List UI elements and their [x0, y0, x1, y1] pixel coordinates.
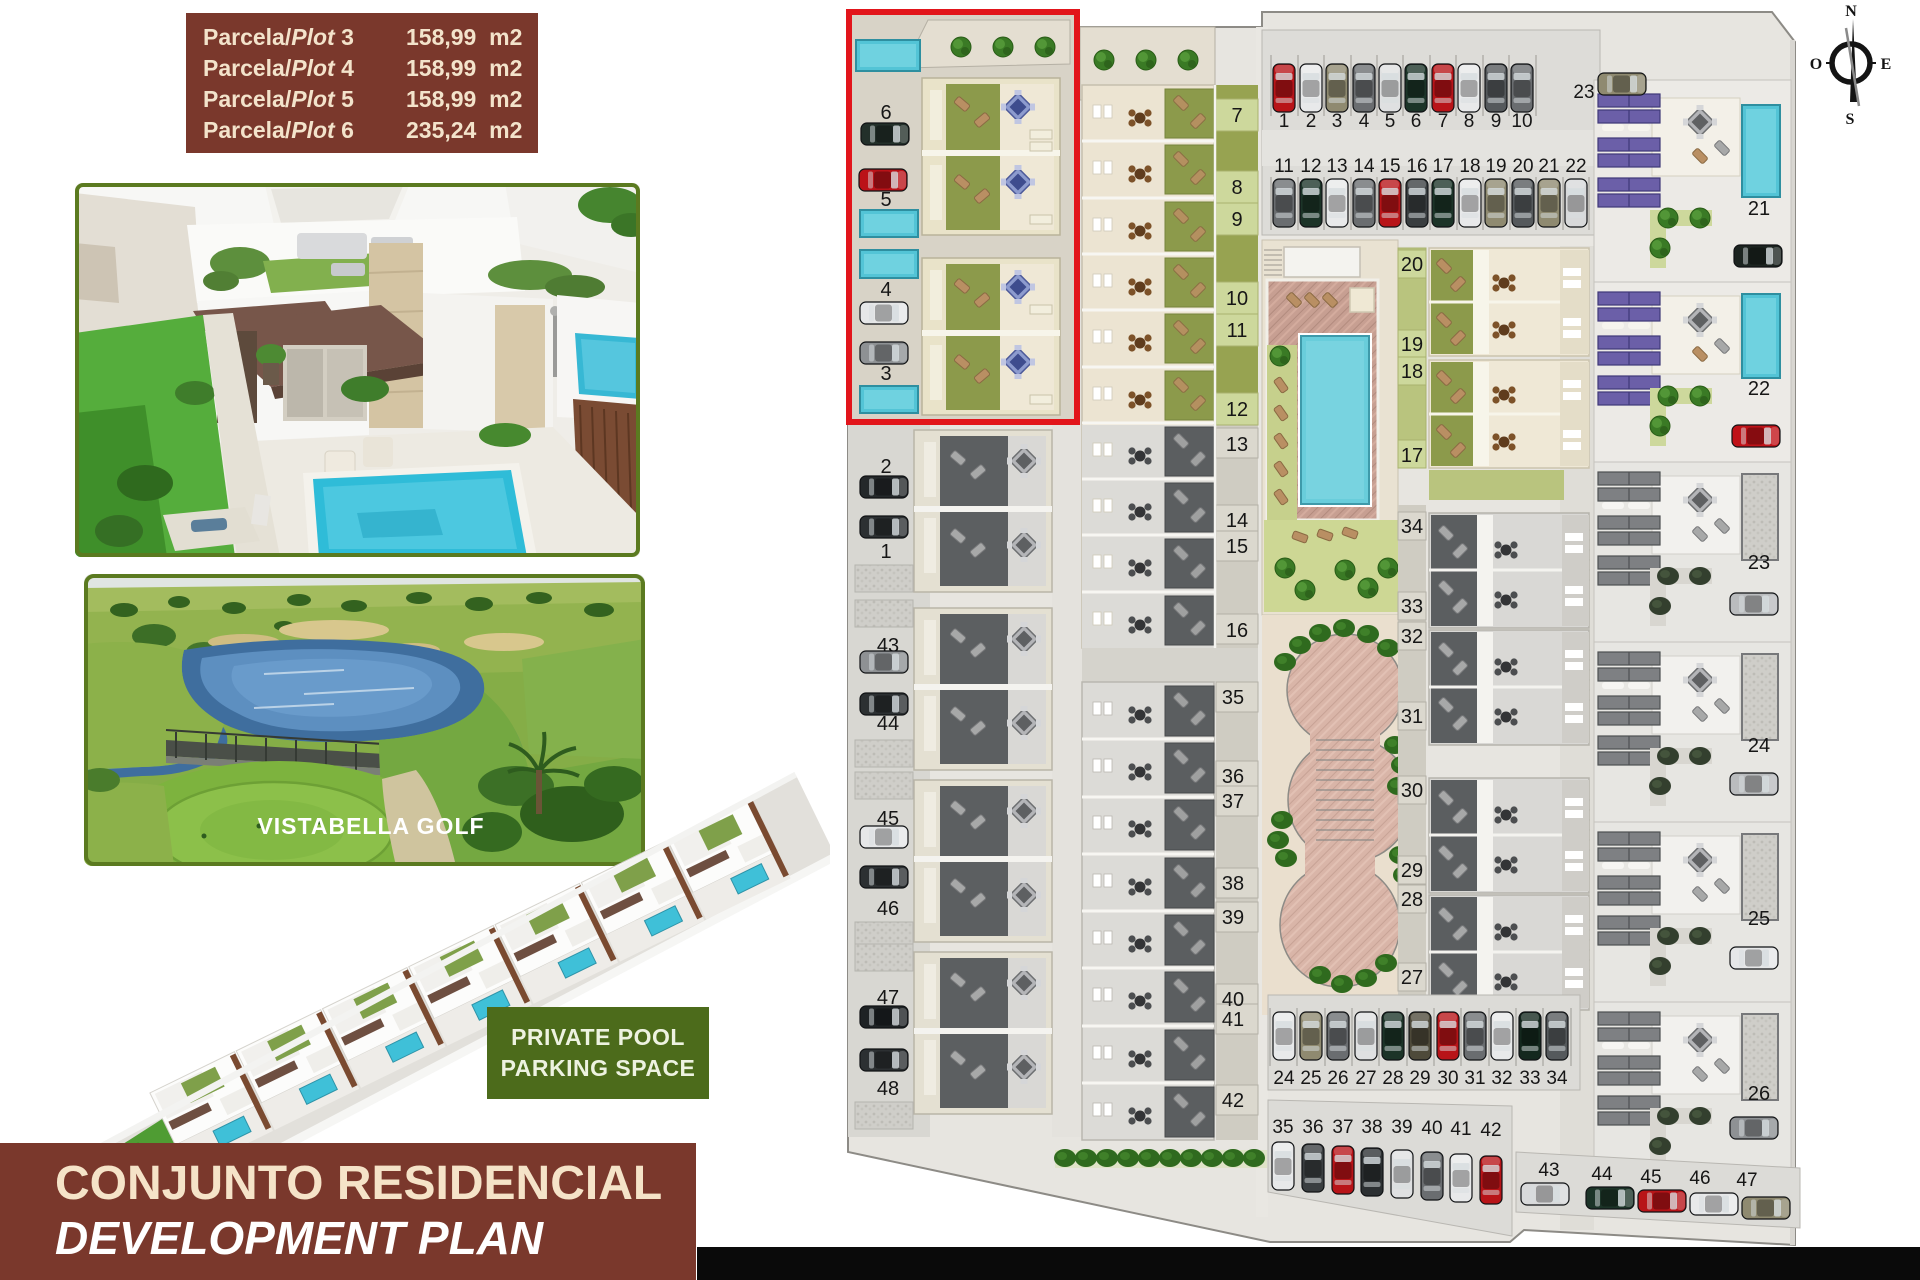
- svg-text:43: 43: [1538, 1160, 1559, 1181]
- svg-text:13: 13: [1326, 156, 1347, 177]
- svg-text:37: 37: [1222, 791, 1244, 813]
- svg-text:39: 39: [1222, 907, 1244, 929]
- svg-text:32: 32: [1491, 1068, 1512, 1089]
- svg-text:38: 38: [1361, 1117, 1382, 1138]
- svg-text:26: 26: [1327, 1068, 1348, 1089]
- svg-text:21: 21: [1748, 198, 1770, 220]
- svg-text:3: 3: [1332, 111, 1343, 132]
- svg-text:19: 19: [1401, 334, 1423, 356]
- svg-text:9: 9: [1491, 111, 1502, 132]
- svg-text:41: 41: [1222, 1009, 1244, 1031]
- svg-text:26: 26: [1748, 1083, 1770, 1105]
- svg-text:18: 18: [1401, 361, 1423, 383]
- svg-text:2: 2: [880, 456, 891, 478]
- svg-text:1: 1: [880, 541, 891, 563]
- svg-text:28: 28: [1382, 1068, 1403, 1089]
- svg-text:11: 11: [1274, 156, 1294, 177]
- svg-text:41: 41: [1450, 1119, 1471, 1140]
- svg-text:24: 24: [1748, 735, 1770, 757]
- svg-text:35: 35: [1222, 687, 1244, 709]
- svg-text:44: 44: [1591, 1164, 1613, 1185]
- svg-text:4: 4: [880, 279, 891, 301]
- svg-text:23: 23: [1748, 552, 1770, 574]
- svg-text:19: 19: [1485, 156, 1506, 177]
- svg-text:37: 37: [1332, 1117, 1353, 1138]
- svg-text:25: 25: [1300, 1068, 1321, 1089]
- svg-text:28: 28: [1401, 889, 1423, 911]
- svg-text:10: 10: [1226, 288, 1248, 310]
- svg-text:20: 20: [1512, 156, 1533, 177]
- svg-text:33: 33: [1519, 1068, 1540, 1089]
- svg-text:42: 42: [1480, 1120, 1501, 1141]
- svg-text:27: 27: [1355, 1068, 1376, 1089]
- svg-text:40: 40: [1421, 1118, 1442, 1139]
- svg-text:46: 46: [1689, 1168, 1710, 1189]
- svg-text:9: 9: [1231, 209, 1242, 231]
- svg-text:44: 44: [877, 713, 899, 735]
- svg-text:12: 12: [1300, 156, 1321, 177]
- svg-text:12: 12: [1226, 399, 1248, 421]
- svg-text:24: 24: [1273, 1068, 1295, 1089]
- svg-text:27: 27: [1401, 967, 1423, 989]
- svg-text:25: 25: [1748, 908, 1770, 930]
- svg-text:31: 31: [1464, 1068, 1485, 1089]
- svg-text:5: 5: [1385, 111, 1396, 132]
- svg-text:29: 29: [1409, 1068, 1430, 1089]
- svg-text:8: 8: [1464, 111, 1475, 132]
- svg-text:35: 35: [1272, 1117, 1293, 1138]
- svg-text:22: 22: [1565, 156, 1586, 177]
- svg-text:32: 32: [1401, 626, 1423, 648]
- svg-text:E: E: [1881, 56, 1892, 73]
- svg-text:6: 6: [1411, 111, 1422, 132]
- svg-text:39: 39: [1391, 1117, 1412, 1138]
- svg-text:O: O: [1810, 56, 1822, 73]
- svg-text:5: 5: [880, 189, 891, 211]
- svg-text:36: 36: [1222, 766, 1244, 788]
- svg-text:14: 14: [1353, 156, 1375, 177]
- svg-text:1: 1: [1279, 111, 1290, 132]
- svg-text:3: 3: [880, 363, 891, 385]
- svg-text:29: 29: [1401, 860, 1423, 882]
- svg-text:17: 17: [1432, 156, 1453, 177]
- svg-text:33: 33: [1401, 596, 1423, 618]
- svg-text:36: 36: [1302, 1117, 1323, 1138]
- svg-text:23: 23: [1573, 82, 1594, 103]
- svg-text:13: 13: [1226, 434, 1248, 456]
- svg-text:S: S: [1846, 111, 1855, 128]
- svg-text:45: 45: [1640, 1167, 1661, 1188]
- svg-text:4: 4: [1359, 111, 1370, 132]
- svg-text:17: 17: [1401, 445, 1423, 467]
- svg-text:42: 42: [1222, 1090, 1244, 1112]
- svg-text:14: 14: [1226, 510, 1248, 532]
- svg-text:7: 7: [1438, 111, 1449, 132]
- svg-text:2: 2: [1306, 111, 1317, 132]
- svg-text:15: 15: [1379, 156, 1400, 177]
- svg-text:11: 11: [1227, 320, 1248, 342]
- svg-text:22: 22: [1748, 378, 1770, 400]
- svg-text:10: 10: [1511, 111, 1532, 132]
- svg-text:34: 34: [1546, 1068, 1568, 1089]
- svg-text:21: 21: [1538, 156, 1559, 177]
- svg-text:18: 18: [1459, 156, 1480, 177]
- svg-text:N: N: [1845, 3, 1857, 20]
- svg-text:48: 48: [877, 1078, 899, 1100]
- svg-text:47: 47: [1736, 1170, 1757, 1191]
- svg-text:15: 15: [1226, 536, 1248, 558]
- svg-text:16: 16: [1406, 156, 1427, 177]
- svg-text:31: 31: [1401, 706, 1423, 728]
- svg-text:7: 7: [1231, 105, 1242, 127]
- svg-text:38: 38: [1222, 873, 1244, 895]
- svg-text:8: 8: [1231, 177, 1242, 199]
- svg-text:40: 40: [1222, 989, 1244, 1011]
- svg-text:6: 6: [880, 102, 891, 124]
- svg-text:34: 34: [1401, 516, 1423, 538]
- svg-text:16: 16: [1226, 620, 1248, 642]
- svg-text:30: 30: [1401, 780, 1423, 802]
- svg-text:20: 20: [1401, 254, 1423, 276]
- svg-text:46: 46: [877, 898, 899, 920]
- svg-text:30: 30: [1437, 1068, 1458, 1089]
